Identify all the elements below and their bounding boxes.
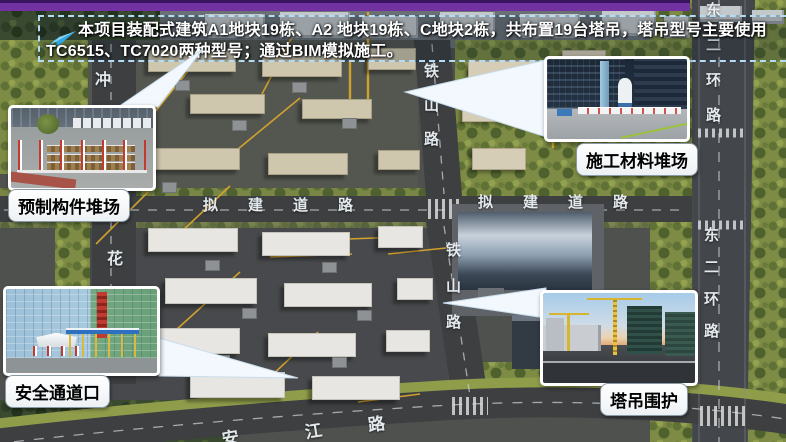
slide-canvas: 铁 山 路 铁 山 路 拟 建 道 路 拟 建 道 路 东 二 环 路 东 二 …	[0, 0, 786, 442]
photo-light-building	[546, 318, 564, 350]
photo-building-bands	[634, 59, 687, 109]
photo-site-containers	[73, 118, 153, 128]
road-label-bottom-char3: 路	[367, 415, 386, 434]
callout-label-material-yard: 施工材料堆场	[576, 143, 698, 176]
photo-scaffold-building	[547, 59, 625, 109]
callout-label-safety-passage: 安全通道口	[5, 375, 110, 408]
photo-fence-panels	[578, 107, 682, 114]
photo-crane-mast	[567, 313, 570, 351]
photo-passage-canopy	[66, 328, 138, 335]
photo-red-walkway	[8, 171, 77, 190]
photo-glass-tower	[627, 306, 662, 355]
photo-tree	[37, 114, 59, 134]
photo-striped-fence	[33, 346, 81, 356]
callout-label-precast-yard: 预制构件堆场	[8, 189, 130, 222]
road-label-left-top: 冲	[95, 73, 111, 89]
road-label-dongerhuan-lower: 东 二 环 路	[704, 228, 719, 339]
road-label-nijian-west: 拟 建 道 路	[203, 198, 353, 213]
road-label-tieshan-upper: 铁 山 路	[424, 64, 439, 147]
road-label-bottom-char1: 安	[221, 429, 241, 442]
road-label-tieshan-lower: 铁 山 路	[446, 243, 461, 330]
road-label-nijian-east: 拟 建 道 路	[478, 195, 628, 210]
callout-photo-precast-yard	[8, 105, 156, 191]
photo-lane-line	[620, 122, 690, 140]
road-label-left-bottom: 花	[107, 252, 123, 268]
photo-ground	[6, 358, 157, 373]
callout-photo-material-yard	[544, 56, 690, 142]
photo-striped-fence-posts	[18, 140, 146, 172]
road-label-bottom-char2: 江	[304, 422, 323, 441]
photo-hoist-column	[600, 61, 608, 107]
photo-machine	[557, 109, 572, 115]
project-summary-banner: 本项目装配式建筑A1地块19栋、A2 地块19栋、C地块2栋，共布置19台塔吊，…	[38, 15, 786, 62]
photo-glass-tower	[665, 312, 695, 356]
callout-photo-tower-crane	[540, 290, 698, 386]
summary-line-1: 本项目装配式建筑A1地块19栋、A2 地块19栋、C地块2栋，共布置19台塔吊，…	[78, 20, 786, 41]
photo-fence-rail	[17, 170, 148, 173]
photo-crane-mast	[613, 298, 617, 356]
callout-label-tower-crane: 塔吊围护	[600, 383, 688, 416]
photo-curb-line	[543, 361, 695, 363]
top-accent-bar	[0, 3, 690, 11]
callout-photo-safety-passage	[3, 286, 160, 376]
photo-cement-silo	[618, 78, 632, 107]
photo-crane-jib	[587, 298, 642, 300]
photo-crane-jib	[549, 313, 589, 315]
